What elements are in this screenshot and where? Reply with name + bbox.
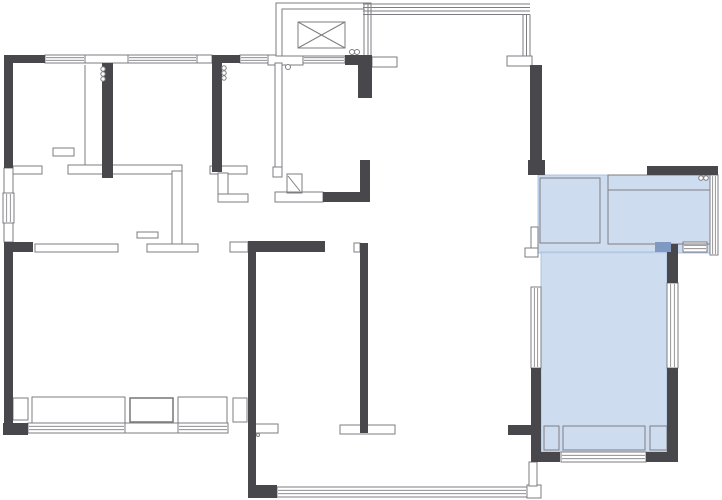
structural-wall <box>323 192 370 202</box>
window-icon <box>178 423 228 433</box>
floor-plan-canvas <box>0 0 722 500</box>
structural-wall <box>508 425 533 435</box>
thin-wall <box>525 248 538 257</box>
accent-layer <box>655 242 671 252</box>
window-icon <box>561 452 646 462</box>
structural-wall <box>533 452 560 462</box>
structural-wall <box>667 368 678 462</box>
thin-wall <box>85 55 128 63</box>
thin-wall <box>527 485 541 498</box>
thin-wall <box>273 167 282 177</box>
thin-wall <box>4 223 13 242</box>
window-icon <box>45 55 85 63</box>
window-icon <box>531 287 541 368</box>
window-icon <box>710 175 718 255</box>
structural-wall <box>212 55 240 63</box>
accent-block <box>655 242 671 252</box>
structural-wall <box>248 485 277 498</box>
thin-wall <box>354 243 360 252</box>
thin-wall <box>35 244 118 252</box>
structural-wall <box>530 65 542 160</box>
fitting-circle-icon <box>101 72 105 76</box>
thin-wall <box>275 63 282 170</box>
window-icon <box>277 487 527 497</box>
thin-wall <box>255 424 278 433</box>
structural-wall <box>4 242 33 252</box>
thin-wall <box>218 194 248 202</box>
floor-plan <box>0 0 722 500</box>
fitting-circle-icon <box>101 67 105 71</box>
fitting-circle-icon <box>699 176 704 181</box>
thin-wall <box>13 166 42 174</box>
structural-wall <box>4 242 13 435</box>
fitting-circle-icon <box>704 176 709 181</box>
thin-wall <box>172 171 182 248</box>
fitting-circle-icon <box>222 66 226 70</box>
thin-wall <box>230 242 248 252</box>
thin-wall <box>147 244 198 252</box>
thin-wall <box>68 165 182 174</box>
thin-wall <box>4 168 13 193</box>
highlight-room-lower[interactable] <box>541 252 667 452</box>
window-icon <box>128 55 197 63</box>
structural-wall <box>3 423 28 435</box>
window-icon <box>3 193 14 223</box>
fitting-circle-icon <box>350 50 355 55</box>
fitting-circle-icon <box>257 434 260 437</box>
thin-wall <box>197 55 212 63</box>
structural-wall <box>647 166 718 175</box>
highlight-room-upper[interactable] <box>538 175 710 253</box>
elevator-shaft <box>276 3 371 56</box>
fitting-circle-icon <box>286 65 291 70</box>
thin-wall <box>372 57 397 67</box>
structural-wall <box>212 63 222 172</box>
fitting-circle-icon <box>101 77 105 81</box>
structural-wall <box>358 55 372 98</box>
structural-wall <box>531 368 541 462</box>
structural-wall <box>646 452 678 462</box>
structural-wall <box>248 252 256 498</box>
structural-wall <box>360 243 368 433</box>
structural-wall <box>248 241 325 252</box>
thin-wall <box>529 462 537 486</box>
structural-wall <box>528 160 545 175</box>
fitting-circle-icon <box>355 50 360 55</box>
fitting-circle-icon <box>222 76 226 80</box>
thin-wall <box>507 56 532 66</box>
structural-wall <box>4 55 13 168</box>
window-icon <box>667 283 678 368</box>
structural-wall <box>360 160 370 193</box>
fitting-circle-icon <box>222 71 226 75</box>
window-icon <box>240 55 268 63</box>
window-icon <box>28 423 125 433</box>
